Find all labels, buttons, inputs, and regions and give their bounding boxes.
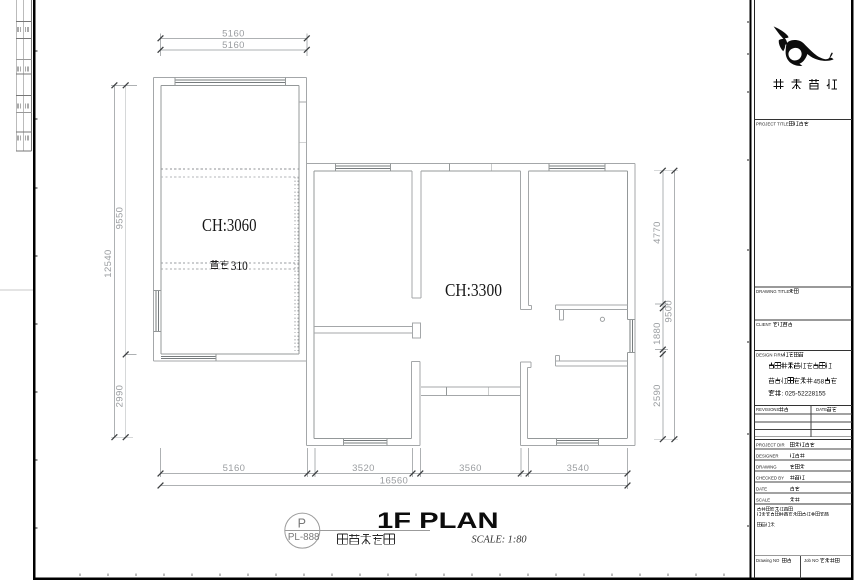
svg-text:SCALE: 1:80: SCALE: 1:80 xyxy=(472,533,527,545)
svg-text:DESIGNER: DESIGNER xyxy=(756,453,778,458)
svg-text:5160: 5160 xyxy=(222,40,245,51)
svg-text:DATE: DATE xyxy=(816,407,827,412)
svg-text:PROJECT TITLE: PROJECT TITLE xyxy=(756,121,789,126)
svg-text:3520: 3520 xyxy=(352,463,375,474)
svg-text:3560: 3560 xyxy=(459,463,482,474)
svg-text:DATE: DATE xyxy=(756,486,767,491)
svg-text:9500: 9500 xyxy=(664,300,675,323)
svg-text:5160: 5160 xyxy=(222,29,245,40)
svg-text:P: P xyxy=(298,516,306,530)
svg-text:2590: 2590 xyxy=(652,384,663,407)
svg-text:CH:3300: CH:3300 xyxy=(445,280,502,300)
svg-text:1880: 1880 xyxy=(652,322,663,345)
svg-text:3540: 3540 xyxy=(567,463,590,474)
svg-text:4770: 4770 xyxy=(652,221,663,244)
svg-text:PL-888: PL-888 xyxy=(288,532,320,543)
svg-text:DRAWING TITLE: DRAWING TITLE xyxy=(756,289,790,294)
svg-text:REVISIONS: REVISIONS xyxy=(756,407,780,412)
svg-text:9550: 9550 xyxy=(115,207,126,230)
svg-text:: 025-52228155: : 025-52228155 xyxy=(782,391,827,398)
svg-text:Drawing NO: Drawing NO xyxy=(756,558,780,563)
svg-text:SCALE: SCALE xyxy=(756,497,770,502)
svg-text:5160: 5160 xyxy=(223,463,246,474)
svg-text:CH:3060: CH:3060 xyxy=(202,215,257,235)
svg-text:12540: 12540 xyxy=(103,249,114,277)
svg-text:Job NO: Job NO xyxy=(804,558,819,563)
svg-text:CLIENT: CLIENT xyxy=(756,322,772,327)
svg-text:310: 310 xyxy=(231,259,248,273)
svg-text:2990: 2990 xyxy=(115,385,126,408)
svg-text:DRAWING: DRAWING xyxy=(756,464,777,469)
svg-text:458: 458 xyxy=(814,378,825,385)
svg-text:DESIGN FIRM: DESIGN FIRM xyxy=(756,352,785,357)
svg-text:PROJECT DIR: PROJECT DIR xyxy=(756,442,785,447)
svg-text:16560: 16560 xyxy=(380,475,408,486)
svg-text:1F PLAN: 1F PLAN xyxy=(377,508,499,533)
svg-text:CHECKED BY: CHECKED BY xyxy=(756,475,784,480)
